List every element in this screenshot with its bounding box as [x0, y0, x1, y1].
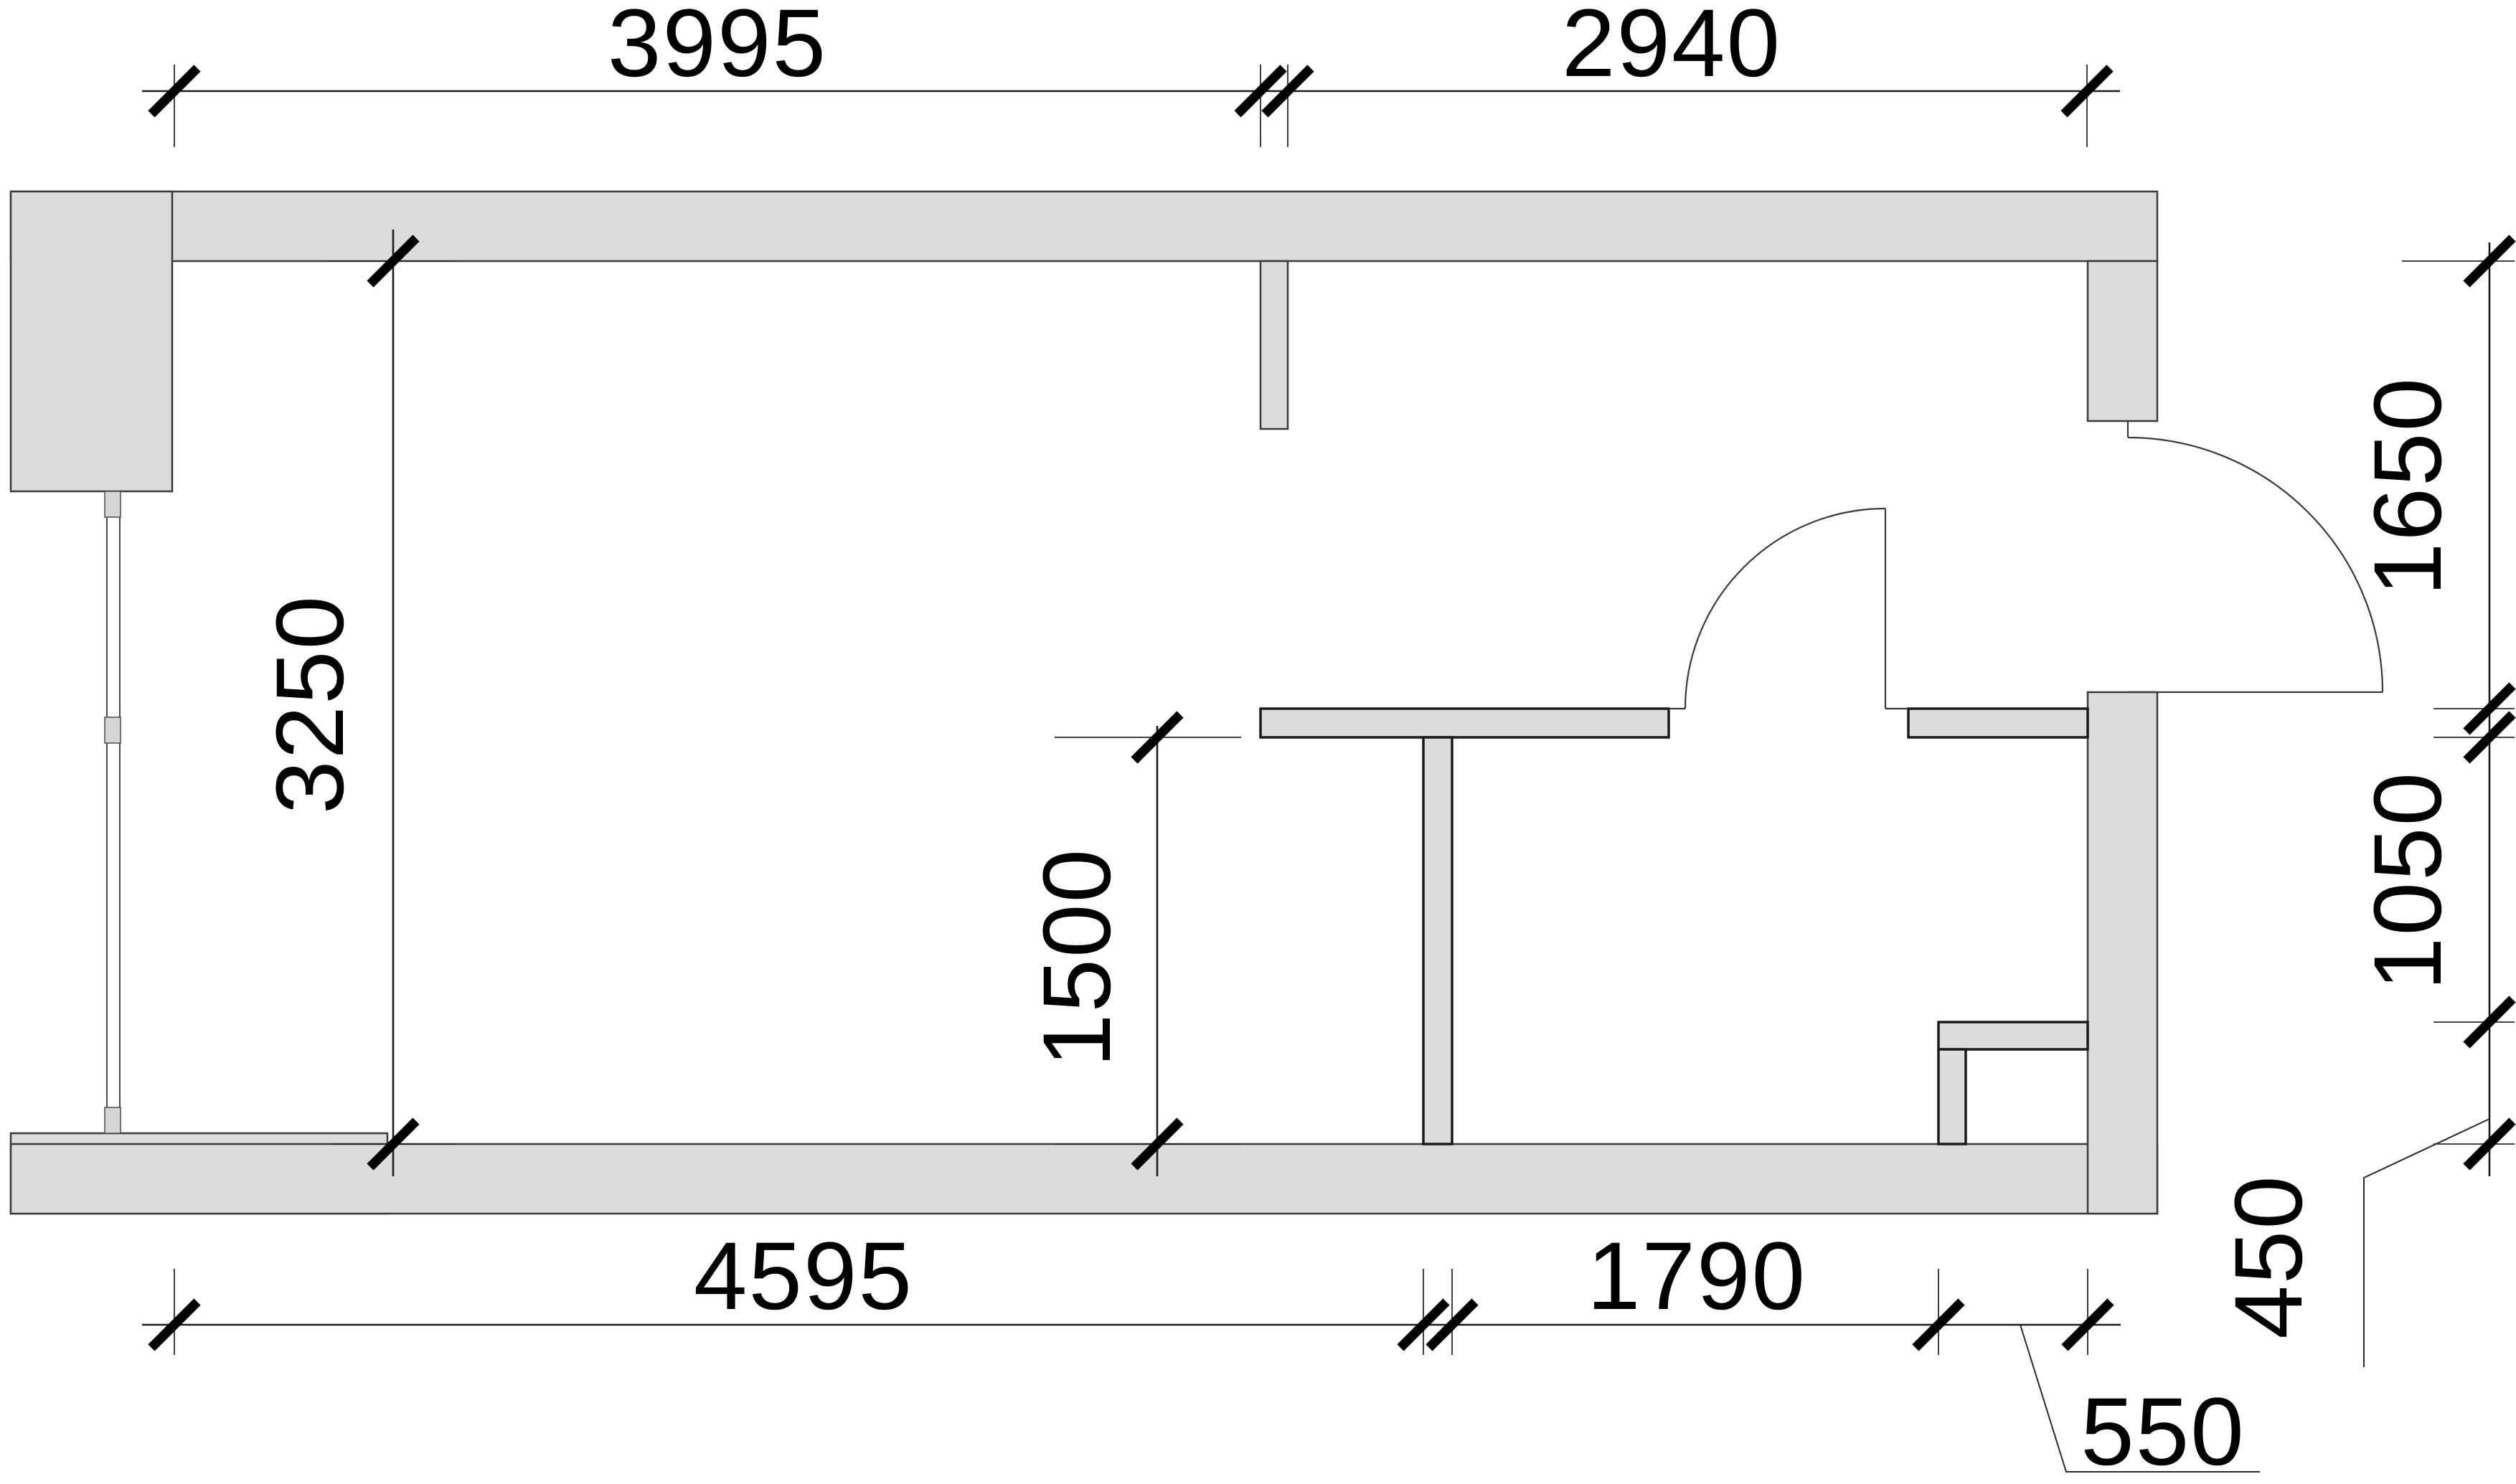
partition-bar-right — [1908, 709, 2088, 737]
window-mullion-block — [105, 717, 121, 743]
wall-top — [11, 192, 2157, 261]
partition-bar-left — [1261, 709, 1669, 737]
interior-door-swing-arc — [1685, 509, 1885, 709]
leader-line-450 — [2364, 1119, 2489, 1367]
dimension-label-right-bottom: 450 — [2215, 1174, 2322, 1339]
dimension-label-interior: 1500 — [1024, 848, 1131, 1067]
exterior-door — [2128, 421, 2383, 692]
exterior-door-swing-arc — [2128, 438, 2383, 692]
dimension-label-bottom-right: 550 — [2081, 1379, 2246, 1484]
dimension-label-top-right: 2940 — [1562, 0, 1781, 97]
floor-plan-canvas: 3995 2940 4595 1790 550 3250 1500 — [0, 0, 2516, 1484]
closet-left-leg — [1938, 1049, 1966, 1144]
wall-stub-top — [1261, 261, 1288, 429]
window-frame-block-top — [105, 491, 121, 517]
wall-bottom — [11, 1144, 2157, 1214]
dimension-label-right-top: 1650 — [2355, 377, 2461, 596]
interior-door — [1669, 509, 1908, 709]
dimension-chain-top: 3995 2940 — [142, 0, 2120, 147]
wall-left-upper-pier — [11, 192, 172, 491]
window-frame-block-bottom — [105, 1107, 121, 1133]
dimension-left: 3250 — [257, 230, 456, 1176]
dimension-chain-right: 1650 1050 450 — [2215, 238, 2515, 1367]
wall-right-upper — [2088, 261, 2157, 421]
floor-plan-page: 3995 2940 4595 1790 550 3250 1500 — [0, 0, 2516, 1484]
dimension-label-top-left: 3995 — [608, 0, 827, 97]
dimension-chain-bottom: 4595 1790 550 — [142, 1223, 2260, 1484]
closet-top-bar — [1938, 1022, 2088, 1049]
dimension-label-left: 3250 — [257, 595, 364, 814]
dimension-label-bottom-middle: 1790 — [1587, 1223, 1806, 1330]
partition-stem — [1423, 737, 1452, 1144]
dimension-interior: 1500 — [1024, 714, 1241, 1176]
window-left — [105, 491, 121, 1133]
dimension-label-right-middle: 1050 — [2355, 771, 2461, 991]
wall-right-lower — [2088, 692, 2157, 1214]
dimension-label-bottom-left: 4595 — [694, 1223, 913, 1330]
